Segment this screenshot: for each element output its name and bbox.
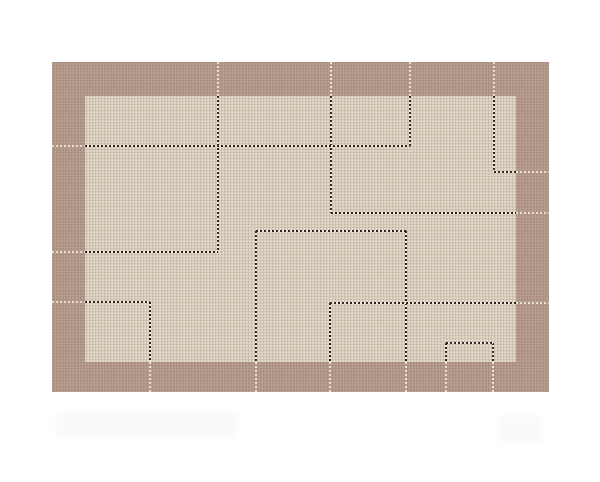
border-accent-line-bottom xyxy=(255,362,257,392)
stitch-line-vertical xyxy=(330,96,332,213)
stitch-line-horizontal xyxy=(85,145,410,147)
page-background xyxy=(0,0,600,482)
border-accent-line-bottom xyxy=(445,362,447,392)
watermark-smudge xyxy=(56,411,238,439)
stitch-line-horizontal xyxy=(494,171,516,173)
border-accent-line-top xyxy=(409,62,411,96)
stitch-line-vertical xyxy=(493,96,495,172)
border-accent-line-bottom xyxy=(329,362,331,392)
border-accent-line-right xyxy=(516,171,549,173)
stitch-line-horizontal xyxy=(256,230,406,232)
border-accent-line-top xyxy=(493,62,495,96)
border-accent-line-right xyxy=(516,302,549,304)
border-accent-line-top xyxy=(330,62,332,96)
border-accent-line-left xyxy=(52,301,85,303)
border-accent-line-top xyxy=(217,62,219,96)
border-accent-line-bottom xyxy=(492,362,494,392)
stitch-line-vertical xyxy=(492,343,494,362)
stitch-line-horizontal xyxy=(446,342,493,344)
border-accent-line-right xyxy=(516,212,549,214)
border-accent-line-bottom xyxy=(149,362,151,392)
stitch-line-horizontal xyxy=(85,301,150,303)
stitch-line-vertical xyxy=(255,231,257,362)
border-accent-line-bottom xyxy=(405,362,407,392)
stitch-line-vertical xyxy=(217,96,219,252)
stitch-line-vertical xyxy=(445,343,447,362)
border-accent-line-left xyxy=(52,145,85,147)
stitch-line-vertical xyxy=(405,231,407,362)
watermark-smudge xyxy=(498,415,542,443)
stitch-line-horizontal xyxy=(331,212,516,214)
stitch-line-horizontal xyxy=(85,251,218,253)
stitch-line-vertical xyxy=(149,302,151,362)
border-accent-line-left xyxy=(52,251,85,253)
rug-photo xyxy=(52,62,549,392)
stitch-line-horizontal xyxy=(330,302,516,304)
rug-pattern-lines xyxy=(52,62,549,392)
stitch-line-vertical xyxy=(409,96,411,146)
stitch-line-vertical xyxy=(329,303,331,362)
